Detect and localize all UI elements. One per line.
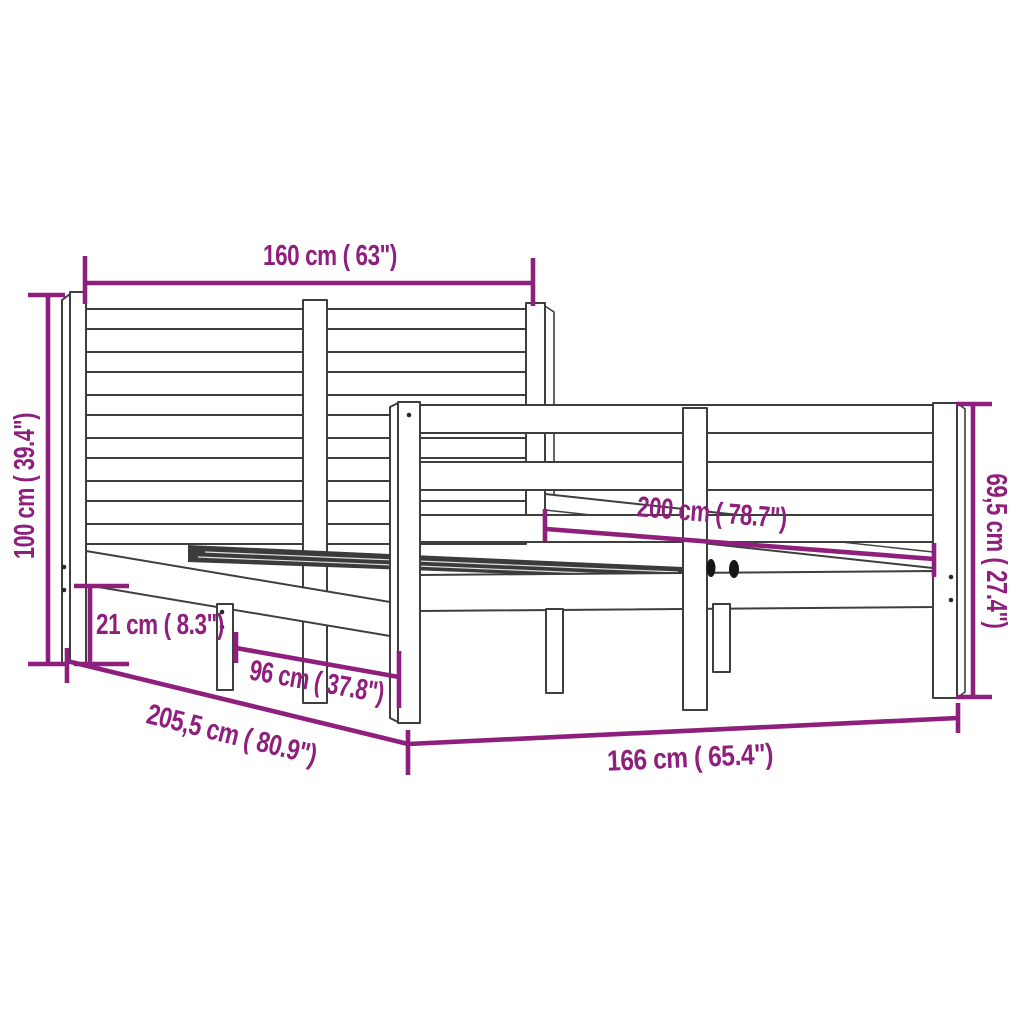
dimension-label-underbed-clearance: 21 cm ( 8.3")	[96, 609, 224, 641]
dimension-label-total-length: 205,5 cm ( 80.9")	[143, 699, 320, 772]
footboard-lower-rail	[420, 571, 935, 611]
bed-frame-dimension-diagram: 160 cm ( 63") 100 cm ( 39.4") 21 cm ( 8.…	[0, 0, 1024, 1024]
diagram-canvas: 160 cm ( 63") 100 cm ( 39.4") 21 cm ( 8.…	[0, 0, 1024, 1024]
dimension-label-frame-width: 166 cm ( 65.4")	[606, 739, 773, 778]
dimension-total-length: 205,5 cm ( 80.9")	[67, 648, 408, 775]
dimension-headboard-width: 160 cm ( 63")	[85, 240, 533, 306]
dimension-label-footboard-height: 69,5 cm ( 27.4")	[980, 474, 1012, 629]
dimension-headboard-height: 100 cm ( 39.4")	[9, 295, 65, 664]
dimension-frame-width: 166 cm ( 65.4")	[408, 703, 958, 778]
dimension-label-headboard-height: 100 cm ( 39.4")	[9, 413, 41, 559]
dimension-label-headboard-width: 160 cm ( 63")	[263, 240, 397, 272]
